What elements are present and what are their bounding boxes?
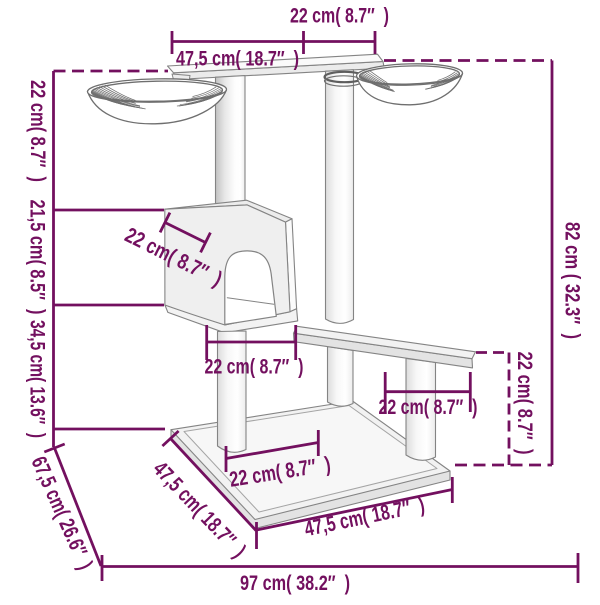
svg-text:97 cm( 38.2″ ): 97 cm( 38.2″ ) [240,571,350,595]
svg-text:21,5 cm( 8.5″ ): 21,5 cm( 8.5″ ) [26,200,50,315]
svg-text:47,5 cm( 18.7″ ): 47,5 cm( 18.7″ ) [176,47,299,71]
svg-text:22 cm( 8.7″ ): 22 cm( 8.7″ ) [379,395,478,419]
svg-text:22 cm( 8.7″ ): 22 cm( 8.7″ ) [26,80,50,182]
svg-text:22 cm( 8.7″ ): 22 cm( 8.7″ ) [205,355,304,379]
svg-text:82 cm ( 32.3″ ): 82 cm ( 32.3″ ) [561,222,585,339]
svg-text:22 cm( 8.7″ ): 22 cm( 8.7″ ) [290,4,389,28]
svg-text:34,5 cm( 13.6″ ): 34,5 cm( 13.6″ ) [26,320,50,438]
svg-text:22 cm( 8.7″ ): 22 cm( 8.7″ ) [513,352,537,455]
